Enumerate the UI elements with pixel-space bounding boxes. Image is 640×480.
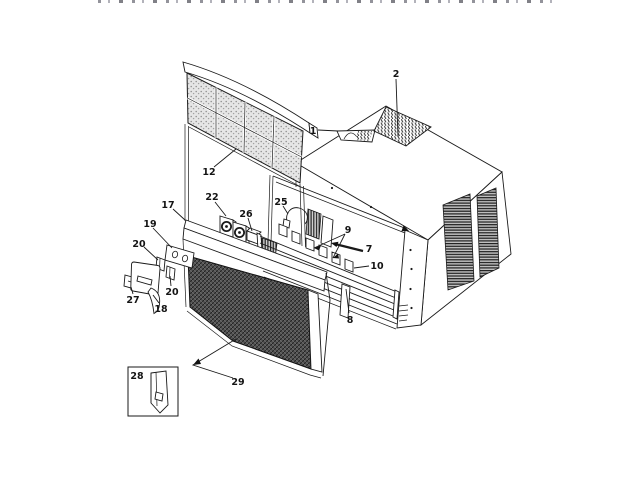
callout-10: 10 <box>370 261 384 272</box>
callout-1: 1 <box>310 126 317 137</box>
side-vent-grille-1 <box>443 194 474 290</box>
callout-18: 18 <box>154 304 168 315</box>
callout-2: 2 <box>393 69 400 80</box>
callout-26: 26 <box>239 209 253 220</box>
callout-20b: 20 <box>165 287 179 298</box>
callout-8: 8 <box>347 315 354 326</box>
mounting-plate <box>165 245 194 268</box>
power-cord <box>283 208 307 228</box>
callout-22: 22 <box>205 192 218 203</box>
callout-17: 17 <box>161 200 174 211</box>
slat-clip <box>340 284 350 318</box>
cabinet-shell <box>296 106 511 328</box>
callout-25: 25 <box>274 197 287 208</box>
callout-29: 29 <box>231 377 244 388</box>
callout-9: 9 <box>345 225 352 236</box>
callout-12: 12 <box>202 167 215 178</box>
filter-grille-panel <box>183 62 318 183</box>
roof-vent-grille-notch <box>356 131 372 141</box>
callout-7: 7 <box>366 244 373 255</box>
callout-28: 28 <box>130 371 144 382</box>
callout-19: 19 <box>143 219 156 230</box>
exploded-diagram: 1 2 7 8 9 10 12 17 18 19 20 20 22 25 26 … <box>0 0 640 480</box>
callout-27: 27 <box>126 295 139 306</box>
coil-hatch-tall <box>306 209 321 239</box>
diagram-page: 1 2 7 8 9 10 12 17 18 19 20 20 22 25 26 … <box>0 0 640 480</box>
callout-20a: 20 <box>132 239 146 250</box>
side-vent-grille-2 <box>477 188 499 277</box>
